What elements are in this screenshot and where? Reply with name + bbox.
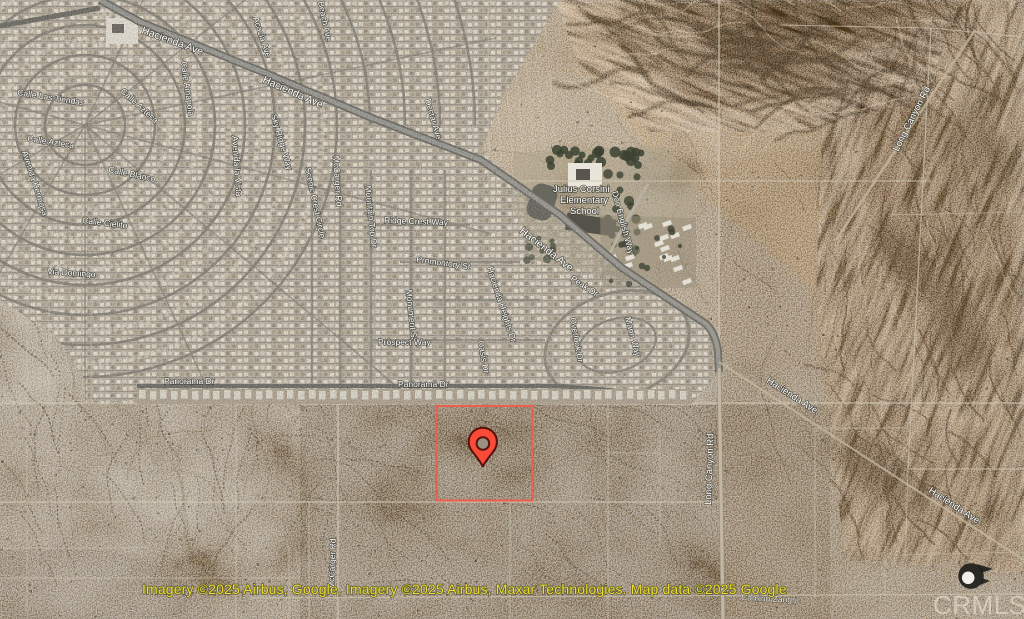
svg-text:Elementary: Elementary bbox=[560, 195, 608, 206]
svg-text:Dectar Ave: Dectar Ave bbox=[423, 98, 444, 141]
svg-text:Beach Ave: Beach Ave bbox=[316, 0, 334, 42]
svg-text:Hacienda Ave: Hacienda Ave bbox=[926, 485, 981, 526]
svg-text:Ridge Crest Way: Ridge Crest Way bbox=[384, 215, 449, 227]
svg-text:Peak Dr: Peak Dr bbox=[569, 273, 600, 298]
svg-text:Hacienda Ave: Hacienda Ave bbox=[517, 225, 575, 274]
svg-text:Promontory St: Promontory St bbox=[416, 254, 472, 272]
svg-text:Don English Way: Don English Way bbox=[610, 190, 637, 256]
svg-text:Avenida la Vista: Avenida la Vista bbox=[230, 135, 244, 196]
svg-text:Mountain Top Dr: Mountain Top Dr bbox=[363, 185, 379, 248]
svg-text:Monument St: Monument St bbox=[404, 289, 419, 341]
svg-text:Long Canyon Rd: Long Canyon Rd bbox=[703, 433, 716, 505]
svg-text:Overlook Dr: Overlook Dr bbox=[568, 317, 586, 364]
svg-text:Prospect Way: Prospect Way bbox=[378, 337, 431, 347]
svg-text:CRMLS: CRMLS bbox=[933, 590, 1024, 619]
svg-text:Calle Amapola: Calle Amapola bbox=[179, 61, 197, 117]
svg-text:Calle Azteca: Calle Azteca bbox=[27, 133, 76, 150]
svg-text:McCarger Rd: McCarger Rd bbox=[331, 155, 345, 206]
svg-text:Calle Blanco: Calle Blanco bbox=[108, 164, 157, 184]
svg-text:Panorama Dr: Panorama Dr bbox=[164, 376, 215, 386]
svg-text:Via Domingo: Via Domingo bbox=[47, 266, 96, 279]
svg-text:Imagery ©2025 Airbus, Google,: Imagery ©2025 Airbus, Google, Imagery ©2… bbox=[142, 581, 787, 597]
svg-text:Calle Las Tiendas: Calle Las Tiendas bbox=[17, 87, 85, 107]
svg-text:School: School bbox=[570, 206, 599, 217]
svg-text:Calle Azteca: Calle Azteca bbox=[119, 86, 161, 125]
svg-text:Oasis Dr: Oasis Dr bbox=[476, 340, 492, 374]
svg-text:Scenic Crest Circle: Scenic Crest Circle bbox=[303, 166, 328, 239]
svg-text:Panorama Dr: Panorama Dr bbox=[398, 379, 449, 389]
svg-text:Acacia Ave: Acacia Ave bbox=[251, 16, 274, 59]
svg-text:Mann Way: Mann Way bbox=[623, 316, 643, 358]
svg-text:Hacienda Ave: Hacienda Ave bbox=[764, 375, 819, 416]
svg-text:Hacienda Heights Dr: Hacienda Heights Dr bbox=[485, 266, 519, 344]
svg-text:Sky Ridge Way: Sky Ridge Way bbox=[269, 113, 295, 172]
svg-text:Hacienda Ave: Hacienda Ave bbox=[140, 25, 205, 58]
svg-text:Long Canyon Rd: Long Canyon Rd bbox=[891, 85, 933, 154]
svg-text:Hacienda Ave: Hacienda Ave bbox=[261, 74, 325, 111]
svg-text:Calle Cielito: Calle Cielito bbox=[82, 215, 129, 230]
svg-text:Avenida Hermosa: Avenida Hermosa bbox=[20, 150, 50, 217]
svg-text:Julius Corsini: Julius Corsini bbox=[553, 184, 610, 195]
